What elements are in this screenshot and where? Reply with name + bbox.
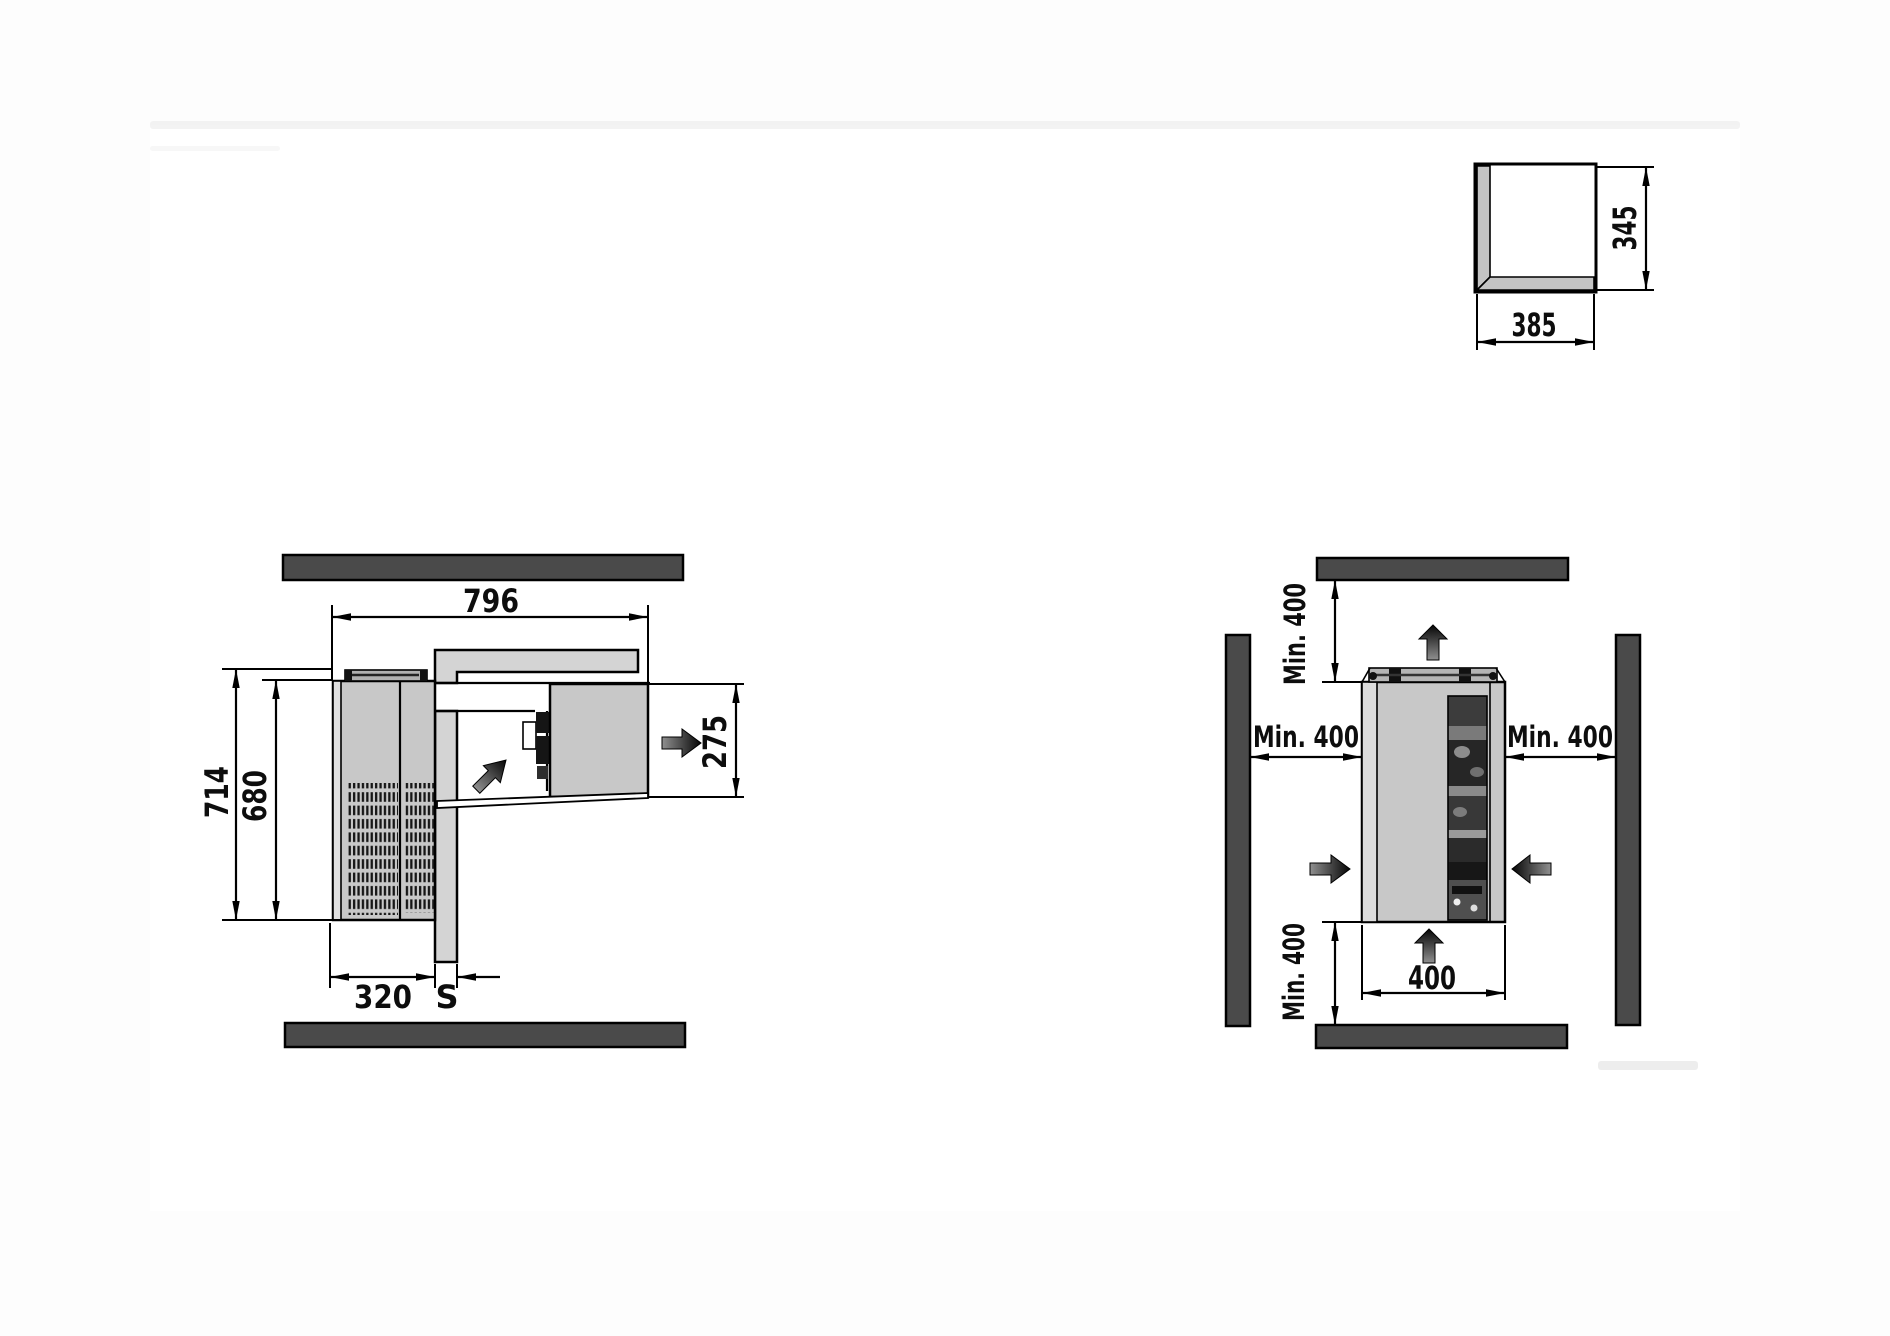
dimension-385: 385 — [1477, 294, 1594, 350]
dimension-345: 345 — [1596, 167, 1654, 290]
airflow-arrow-inward-right-icon — [1512, 855, 1551, 883]
right-clearance-view: Min. 400 Min. 400 Min. 400 Min. 400 — [1226, 558, 1640, 1048]
wall-bar-bottom — [285, 1023, 685, 1047]
wall-bar-top — [1317, 558, 1568, 580]
vent-grille-left — [347, 783, 398, 915]
dimension-label-275: 275 — [696, 715, 734, 769]
open-panel-line — [437, 793, 648, 808]
wall-bar-bottom — [1316, 1025, 1567, 1048]
clearance-label-right: Min. 400 — [1507, 720, 1613, 754]
clearance-label-left: Min. 400 — [1253, 720, 1359, 754]
cutout-wall-left — [1477, 166, 1490, 290]
monoblock-edge-strip — [333, 681, 341, 920]
dimension-label-320: 320 — [354, 978, 412, 1016]
dimension-label-400: 400 — [1408, 959, 1456, 997]
vent-grille-right — [404, 783, 434, 913]
left-top-view: 796 714 680 275 — [198, 555, 744, 1047]
mounting-bracket — [345, 670, 427, 681]
cold-room-wall-strip — [435, 711, 457, 962]
dimension-label-714: 714 — [198, 766, 236, 818]
wall-bar-top — [283, 555, 683, 580]
airflow-arrow-diagonal-icon — [468, 752, 515, 799]
airflow-arrow-up-top-icon — [1419, 625, 1447, 660]
wall-bar-right — [1616, 635, 1640, 1025]
airflow-arrow-up-bottom-icon — [1415, 929, 1443, 963]
clearance-bottom: Min. 400 — [1277, 922, 1362, 1025]
dimension-label-680: 680 — [236, 770, 274, 822]
clearance-left: Min. 400 — [1250, 720, 1362, 757]
dimension-label-S: S — [435, 978, 458, 1016]
scanned-installation-drawing: 796 714 680 275 — [0, 0, 1890, 1336]
dimension-680: 680 — [236, 680, 333, 920]
technical-diagram: 796 714 680 275 — [0, 0, 1890, 1336]
cold-room-wall-corner — [435, 650, 638, 683]
clearance-label-top: Min. 400 — [1278, 583, 1312, 685]
monoblock-unit — [1362, 668, 1505, 922]
monoblock-edge-strip-left — [1362, 682, 1377, 922]
clearance-top: Min. 400 — [1278, 580, 1362, 685]
wall-bar-left — [1226, 635, 1250, 1026]
wall-cutout-detail: 345 385 — [1475, 164, 1654, 350]
inner-compartment — [550, 684, 648, 797]
cutout-wall-bottom — [1477, 277, 1594, 290]
dimension-label-796: 796 — [463, 582, 519, 620]
clearance-right: Min. 400 — [1505, 720, 1616, 757]
airflow-arrow-inward-left-icon — [1310, 855, 1350, 883]
condenser-texture — [1448, 696, 1487, 920]
mounting-bracket — [1362, 668, 1505, 682]
dimension-label-345: 345 — [1606, 206, 1644, 251]
dimension-label-385: 385 — [1512, 306, 1557, 344]
evaporator-detail — [523, 712, 549, 779]
clearance-label-bottom: Min. 400 — [1277, 923, 1311, 1021]
dimension-320-S: 320 S — [330, 923, 500, 1016]
cutout-outline — [1475, 164, 1596, 292]
